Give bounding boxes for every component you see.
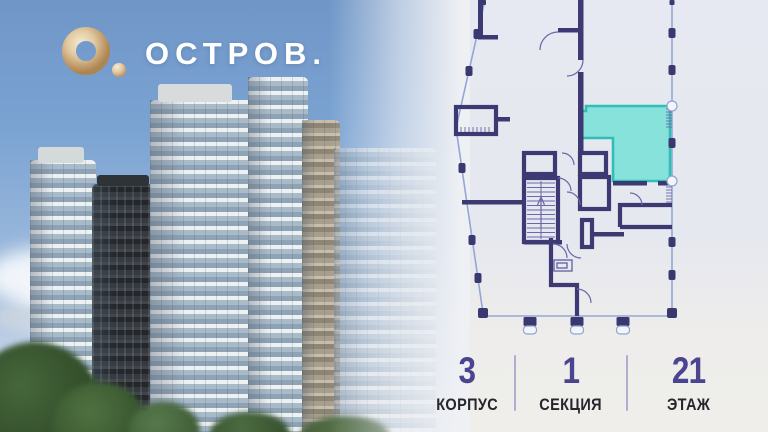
fixtures [554, 260, 572, 271]
stat-section-label: СЕКЦИЯ [540, 396, 603, 415]
staircase [527, 181, 555, 239]
stat-building-value: 3 [459, 352, 476, 389]
stat-building: 3 КОРПУС [420, 352, 514, 415]
building-photo: ОСТРОВ. [0, 0, 470, 432]
facade-line-left [456, 0, 485, 313]
logo-ring-icon [56, 24, 132, 82]
stat-floor-value: 21 [672, 352, 705, 389]
stat-section: 1 СЕКЦИЯ [516, 352, 626, 415]
page: ОСТРОВ. [0, 0, 768, 432]
logo-text: ОСТРОВ. [145, 38, 327, 69]
stat-floor-label: ЭТАЖ [667, 396, 710, 415]
stat-section-value: 1 [563, 352, 580, 389]
floor-plan [420, 0, 768, 340]
stat-floor: 21 ЭТАЖ [628, 352, 750, 415]
selected-apartment[interactable] [582, 106, 670, 181]
brand-logo: ОСТРОВ. [56, 24, 327, 82]
stat-building-label: КОРПУС [436, 396, 498, 415]
unit-stats: 3 КОРПУС 1 СЕКЦИЯ 21 ЭТАЖ [420, 340, 768, 426]
